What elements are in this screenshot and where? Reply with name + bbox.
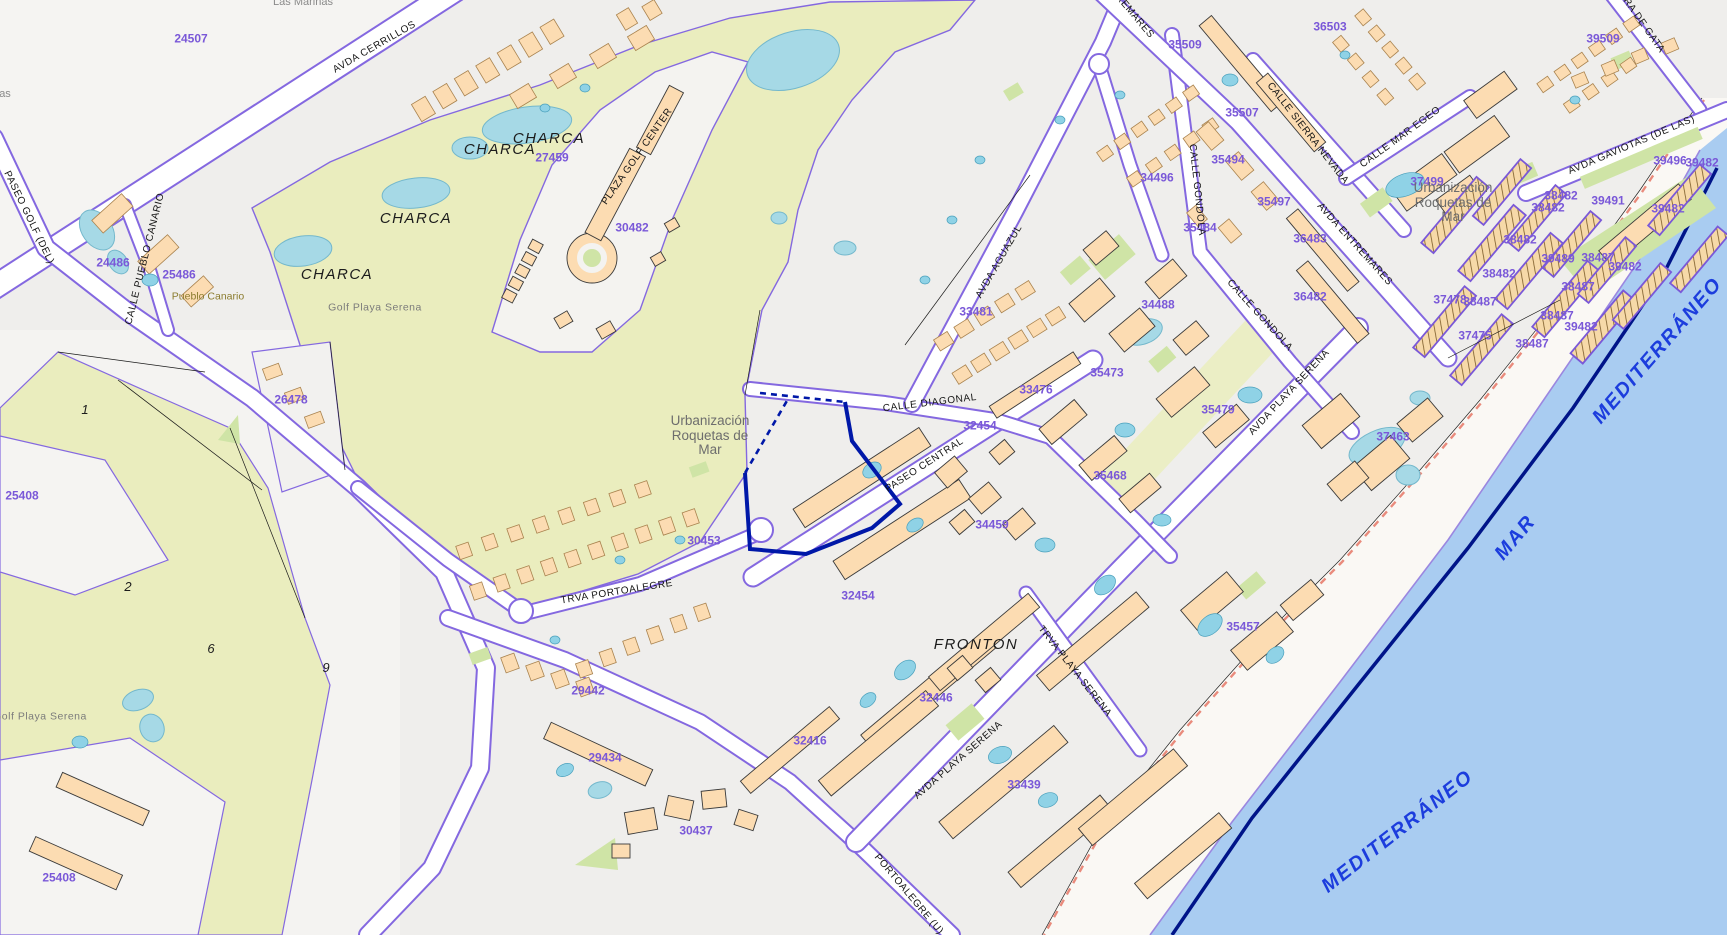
map-base-layer [0,0,1727,935]
cadastral-map-viewport[interactable]: Las Marinasas245072448625486264782540825… [0,0,1727,935]
